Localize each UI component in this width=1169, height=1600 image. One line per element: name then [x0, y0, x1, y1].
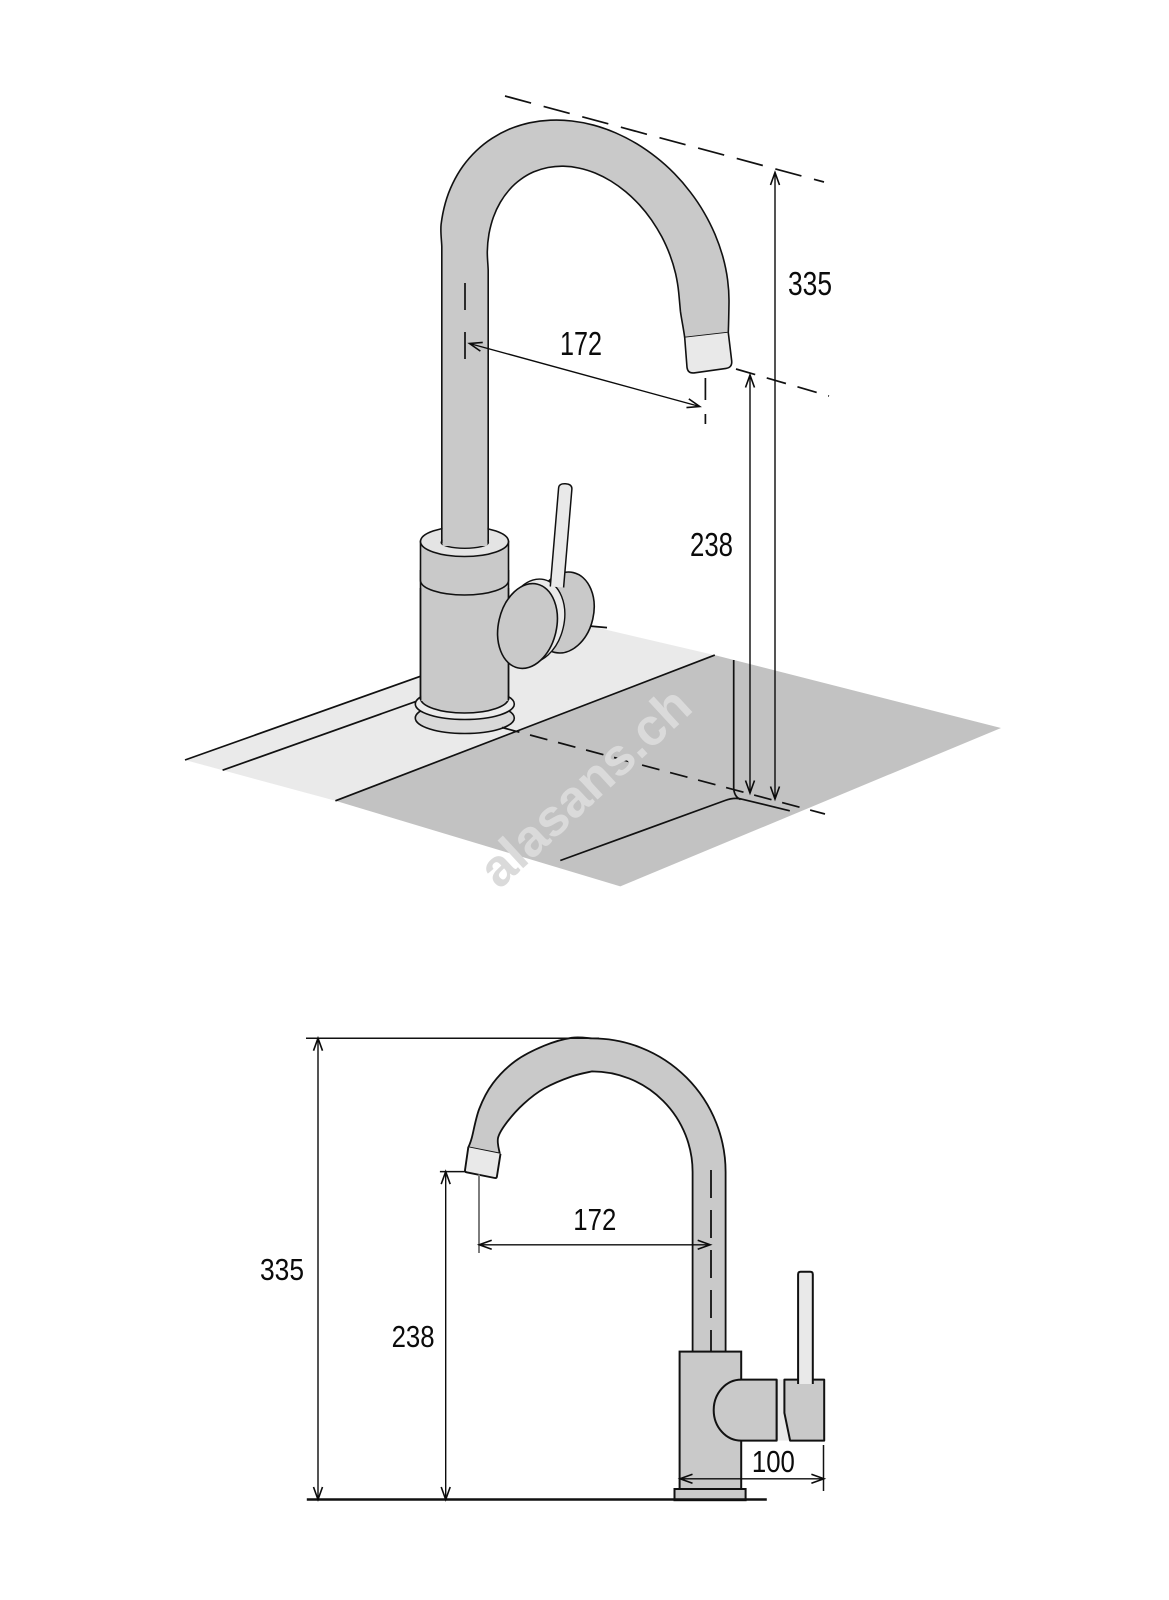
svg-text:172: 172 — [573, 1202, 616, 1237]
svg-text:100: 100 — [752, 1444, 795, 1479]
svg-text:335: 335 — [788, 265, 832, 302]
svg-text:335: 335 — [260, 1252, 304, 1287]
svg-text:172: 172 — [560, 325, 602, 362]
svg-text:238: 238 — [392, 1319, 435, 1354]
svg-text:238: 238 — [690, 526, 733, 563]
